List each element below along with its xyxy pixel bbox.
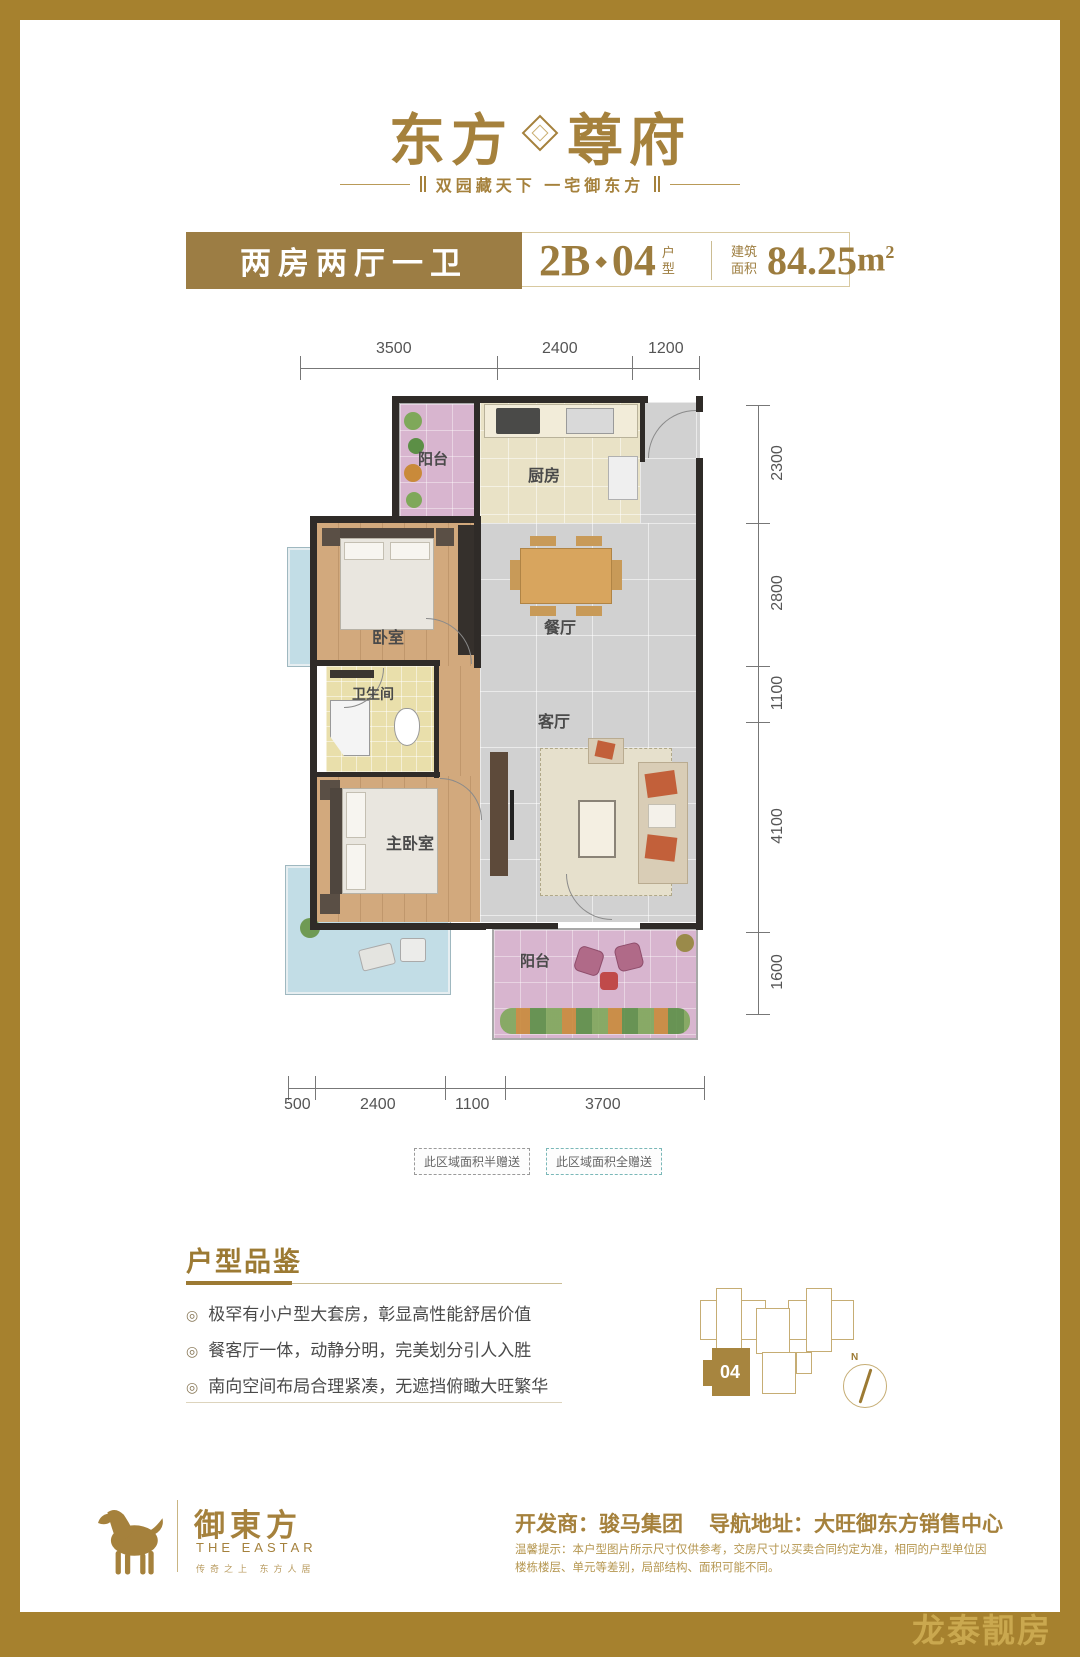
highlights-underline-rule: [292, 1283, 562, 1284]
pillow: [344, 542, 384, 560]
highlights-title: 户型品鉴: [186, 1240, 302, 1279]
highlights-underline-bar: [186, 1281, 292, 1285]
dim-label: 2400: [360, 1096, 396, 1114]
bed-headboard: [330, 788, 342, 894]
highlight-item: ◎极罕有小户型大套房，彰显高性能舒居价值: [186, 1300, 606, 1325]
area-value: 84.25: [767, 241, 857, 281]
wall-segment: [480, 923, 558, 929]
footer-disclaimer: 温馨提示：本户型图片所示尺寸仅供参考，交房尺寸以买卖合同约定为准，相同的户型单位…: [515, 1542, 993, 1578]
wall-segment: [310, 772, 440, 777]
dim-label: 1600: [769, 942, 787, 1002]
compass-north-label: N: [851, 1352, 858, 1363]
room-label-bedroom: 卧室: [372, 624, 404, 648]
wall-segment: [640, 402, 645, 462]
balcony-greenery: [500, 1008, 690, 1034]
wall-segment: [310, 923, 486, 930]
room-label-balcony-top: 阳台: [418, 448, 448, 469]
nightstand: [320, 894, 340, 914]
area-unit: m2: [857, 243, 894, 277]
dim-tick: [315, 1076, 316, 1100]
keyplan-building: [806, 1288, 832, 1352]
footer-logo-tagline: 传奇之上 东方人居: [196, 1562, 316, 1575]
dining-chair: [612, 560, 622, 590]
room-label-living: 客厅: [538, 708, 570, 732]
compass-icon: [843, 1364, 887, 1408]
tagline-bars-icon: [654, 176, 660, 192]
unit-code-number: 04: [612, 239, 656, 283]
highlight-text: 南向空间布局合理紧凑，无遮挡俯瞰大旺繁华: [208, 1377, 548, 1396]
wall-segment: [474, 516, 481, 668]
brand-tagline: 双园藏天下 一宅御东方: [436, 172, 644, 196]
dining-chair: [530, 536, 556, 546]
keyplan-unit-label: 04: [720, 1362, 740, 1383]
highlights-separator: [186, 1402, 562, 1403]
dining-chair: [576, 606, 602, 616]
dim-tick: [497, 356, 498, 380]
tagline-rule-right: [670, 184, 740, 185]
dim-tick: [505, 1076, 506, 1100]
address-label: 导航地址：大旺御东方销售中心: [709, 1513, 1003, 1536]
dim-tick: [746, 523, 770, 524]
sink-icon: [566, 408, 614, 434]
footer-logo-cn: 御東方: [194, 1500, 302, 1545]
bed-headboard: [340, 528, 434, 538]
dining-chair: [576, 536, 602, 546]
horse-logo-icon: [96, 1496, 168, 1578]
dimension-line-bottom: [288, 1088, 705, 1089]
brand-logo-right: 尊府: [567, 96, 691, 177]
dim-label: 500: [284, 1096, 311, 1114]
brand-logo-left: 东方: [389, 96, 513, 177]
dimension-line-right: [758, 405, 759, 1015]
bullet-icon: ◎: [186, 1307, 198, 1323]
tagline-bars-icon: [420, 176, 426, 192]
stove-icon: [496, 408, 540, 434]
room-label-kitchen: 厨房: [528, 462, 560, 486]
tv-icon: [510, 790, 514, 840]
cushion: [644, 770, 677, 798]
dim-label: 3700: [585, 1096, 621, 1114]
note-half-gift: 此区域面积半赠送: [414, 1148, 530, 1175]
pillow: [346, 792, 366, 838]
dim-label: 2800: [769, 563, 787, 623]
dim-label: 2300: [769, 433, 787, 493]
fridge-icon: [608, 456, 638, 500]
brand-tagline-row: 双园藏天下 一宅御东方: [0, 172, 1080, 196]
terrace-cushion: [400, 938, 426, 962]
footer-contact-line: 开发商：骏马集团导航地址：大旺御东方销售中心: [515, 1508, 1003, 1538]
dining-table: [520, 548, 612, 604]
footer-logo-en: THE EASTAR: [196, 1540, 317, 1555]
tv-console: [490, 752, 508, 876]
poster-canvas: 东方尊府 双园藏天下 一宅御东方 两房两厅一卫 2B ◆ 04 户型 建筑面积 …: [0, 0, 1080, 1657]
plant-icon: [404, 412, 422, 430]
compass-needle: [859, 1368, 873, 1403]
plant-icon: [676, 934, 694, 952]
wall-segment: [310, 516, 480, 523]
highlight-item: ◎南向空间布局合理紧凑，无遮挡俯瞰大旺繁华: [186, 1372, 606, 1397]
footer-divider: [177, 1500, 178, 1572]
highlight-text: 极罕有小户型大套房，彰显高性能舒居价值: [208, 1305, 531, 1324]
wall-segment: [392, 396, 399, 523]
pillow: [346, 844, 366, 890]
keyplan-unit-04: [703, 1360, 713, 1386]
dim-label: 2400: [542, 340, 578, 358]
wall-segment: [392, 396, 648, 403]
diamond-separator-icon: ◆: [595, 252, 607, 270]
dim-label: 1200: [648, 340, 684, 358]
header-divider: [711, 241, 712, 280]
bullet-icon: ◎: [186, 1379, 198, 1395]
tagline-rule-left: [340, 184, 410, 185]
balcony-table: [600, 972, 618, 990]
seal-icon: [522, 114, 559, 151]
dim-tick: [699, 356, 700, 380]
wall-segment: [696, 458, 703, 930]
wall-segment: [640, 923, 703, 929]
dim-tick: [632, 356, 633, 380]
dimension-line-top: [300, 368, 700, 369]
unit-header: 两房两厅一卫 2B ◆ 04 户型 建筑面积 84.25 m2: [186, 232, 850, 287]
keyplan-building: [762, 1352, 796, 1394]
dim-label: 4100: [769, 796, 787, 856]
room-label-balcony-bottom: 阳台: [520, 950, 550, 971]
developer-label: 开发商：骏马集团: [515, 1513, 683, 1536]
dim-label: 1100: [455, 1096, 489, 1114]
brand-logo: 东方尊府: [0, 96, 1080, 177]
unit-code-prefix: 2B: [539, 239, 590, 283]
wall-segment: [310, 660, 440, 666]
room-hallway: [438, 666, 480, 776]
dim-tick: [746, 1014, 770, 1015]
cushion: [648, 804, 676, 828]
plant-icon: [406, 492, 422, 508]
unit-code: 2B ◆ 04 户型: [539, 233, 678, 288]
keyplan-building: [756, 1308, 790, 1354]
dim-tick: [746, 405, 770, 406]
toilet-icon: [394, 708, 420, 746]
room-label-bathroom: 卫生间: [352, 684, 394, 704]
dim-tick: [746, 666, 770, 667]
wall-segment: [696, 396, 703, 412]
dim-tick: [445, 1076, 446, 1100]
highlight-item: ◎餐客厅一体，动静分明，完美划分引人入胜: [186, 1336, 606, 1361]
keyplan-building: [716, 1288, 742, 1352]
highlight-text: 餐客厅一体，动静分明，完美划分引人入胜: [208, 1341, 531, 1360]
unit-area: 建筑面积 84.25 m2: [731, 233, 894, 288]
area-unit-base: m: [857, 242, 885, 279]
area-label: 建筑面积: [731, 244, 761, 277]
dim-label: 3500: [376, 340, 412, 358]
coffee-table: [578, 800, 616, 858]
cushion: [595, 740, 616, 759]
dim-tick: [746, 722, 770, 723]
bullet-icon: ◎: [186, 1343, 198, 1359]
wall-segment: [310, 516, 317, 930]
cushion: [645, 834, 678, 861]
room-label-dining: 餐厅: [544, 614, 576, 638]
wall-segment: [474, 396, 480, 516]
nightstand: [322, 528, 340, 546]
nightstand: [436, 528, 454, 546]
watermark: 龙泰靓房: [912, 1604, 1052, 1652]
unit-code-suffix: 户型: [662, 245, 678, 276]
dim-tick: [300, 356, 301, 380]
dim-tick: [704, 1076, 705, 1100]
dim-label: 1100: [769, 663, 787, 723]
keyplan-building: [796, 1352, 812, 1374]
dining-chair: [510, 560, 520, 590]
wall-segment: [434, 666, 439, 778]
pillow: [390, 542, 430, 560]
unit-type-badge: 两房两厅一卫: [186, 232, 522, 289]
room-label-master: 主卧室: [386, 830, 434, 854]
dim-tick: [746, 932, 770, 933]
area-unit-sup: 2: [885, 242, 894, 262]
note-full-gift: 此区域面积全赠送: [546, 1148, 662, 1175]
